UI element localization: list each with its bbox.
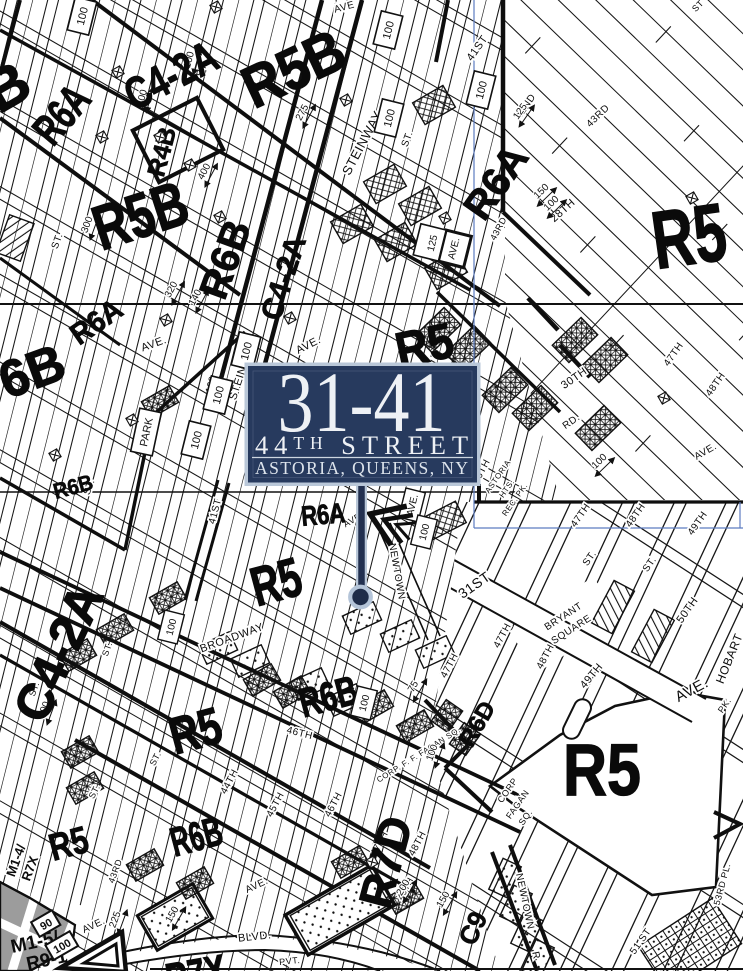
svg-text:R5: R5 (563, 730, 641, 811)
svg-text:R6A: R6A (300, 497, 347, 532)
svg-text:ASTORIA, QUEENS, NY: ASTORIA, QUEENS, NY (255, 458, 468, 478)
svg-text:44TH STREET: 44TH STREET (255, 430, 468, 460)
